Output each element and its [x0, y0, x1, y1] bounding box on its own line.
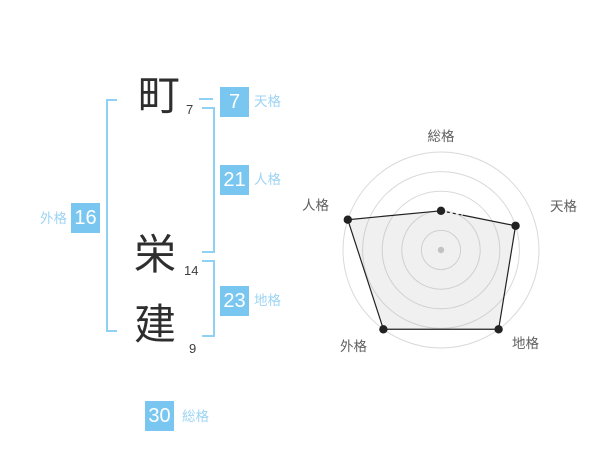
radar-point-地格: [494, 325, 502, 333]
score-label-tenkaku: 天格: [254, 95, 281, 109]
bracket-jinkaku-bottom-tick: [202, 251, 215, 253]
bracket-chikaku-top-tick: [202, 260, 215, 262]
bracket-tenkaku-tick: [199, 98, 213, 100]
bracket-gaikaku-bottom-tick: [106, 330, 117, 332]
radar-axis-label-総格: 総格: [428, 129, 455, 144]
radar-point-外格: [379, 325, 387, 333]
bracket-chikaku-vertical: [213, 260, 215, 337]
radar-axis-label-外格: 外格: [340, 339, 367, 354]
score-box-soukaku: 30: [145, 401, 174, 431]
name-char-3: 建: [134, 304, 176, 346]
score-label-soukaku: 総格: [182, 410, 209, 424]
bracket-chikaku-bottom-tick: [202, 335, 215, 337]
radar-axis-label-地格: 地格: [512, 336, 540, 351]
score-box-tenkaku: 7: [220, 87, 249, 117]
bracket-gaikaku-top-tick: [106, 99, 117, 101]
radar-point-天格: [511, 222, 519, 230]
radar-polygon-fill: [348, 211, 516, 329]
bracket-gaikaku-vertical: [106, 99, 108, 332]
score-box-chikaku: 23: [220, 286, 249, 316]
radar-point-人格: [344, 216, 352, 224]
radar-axis-label-天格: 天格: [550, 199, 578, 214]
bracket-jinkaku-top-tick: [202, 107, 215, 109]
score-box-jinkaku: 21: [220, 165, 249, 195]
stroke-count-3: 9: [189, 342, 196, 355]
score-box-gaikaku: 16: [71, 203, 100, 233]
score-label-jinkaku: 人格: [254, 173, 281, 187]
radar-point-総格: [437, 207, 445, 215]
bracket-jinkaku-vertical: [213, 107, 215, 253]
name-char-1: 町: [138, 75, 180, 117]
score-label-gaikaku: 外格: [40, 212, 67, 226]
stroke-count-1: 7: [186, 103, 193, 116]
radar-axis-label-人格: 人格: [302, 198, 329, 213]
radar-chart: 総格天格地格外格人格: [295, 105, 595, 375]
name-char-2: 栄: [134, 234, 176, 276]
stroke-count-2: 14: [184, 264, 198, 277]
name-fortune-panel: 町 7 栄 14 建 9 7 天格 21 人格 23 地格 16 外格 30 総…: [0, 0, 600, 470]
score-label-chikaku: 地格: [254, 294, 281, 308]
